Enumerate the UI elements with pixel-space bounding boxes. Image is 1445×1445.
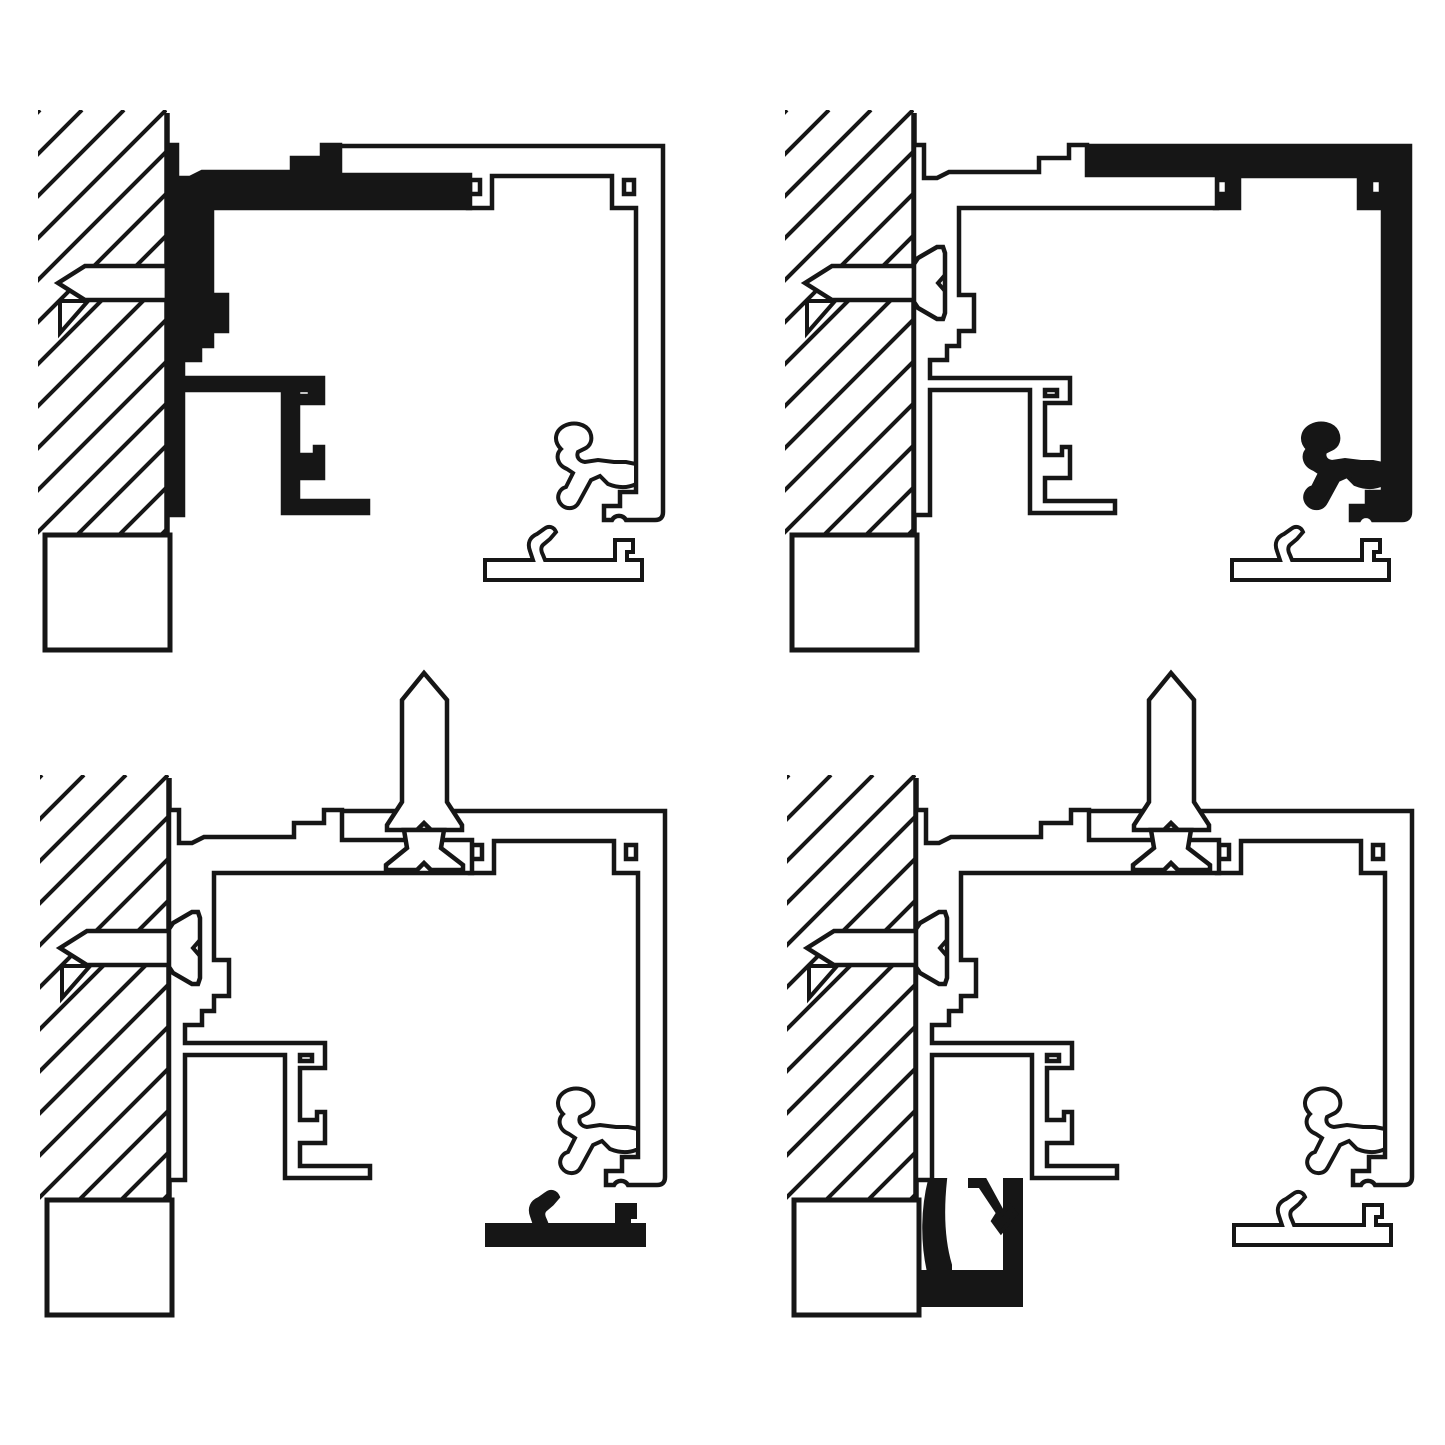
cover-channel-profile <box>920 1180 1021 1305</box>
anchor-screw <box>58 266 167 333</box>
anchor-screw-head <box>169 912 200 984</box>
panel-bottom-right <box>760 660 1440 1360</box>
mounting-plate <box>487 1192 644 1245</box>
sill-block <box>794 1200 919 1315</box>
anchor-screw-head <box>916 912 947 984</box>
sill-block <box>792 535 917 650</box>
panel-bottom-left <box>30 660 710 1360</box>
panel-top-right <box>760 88 1440 668</box>
anchor-screw <box>805 266 914 333</box>
diagram-page <box>0 0 1445 1445</box>
panel-top-left <box>30 88 710 668</box>
anchor-screw <box>60 931 169 998</box>
mounting-plate <box>1234 1192 1391 1245</box>
sill-block <box>47 1200 172 1315</box>
mounting-plate <box>1232 527 1389 580</box>
wall-bracket-profile <box>167 145 470 515</box>
anchor-screw-head <box>914 247 945 319</box>
mounting-plate <box>485 527 642 580</box>
anchor-screw <box>807 931 916 998</box>
sill-block <box>45 535 170 650</box>
wall-bracket-profile <box>914 145 1217 515</box>
